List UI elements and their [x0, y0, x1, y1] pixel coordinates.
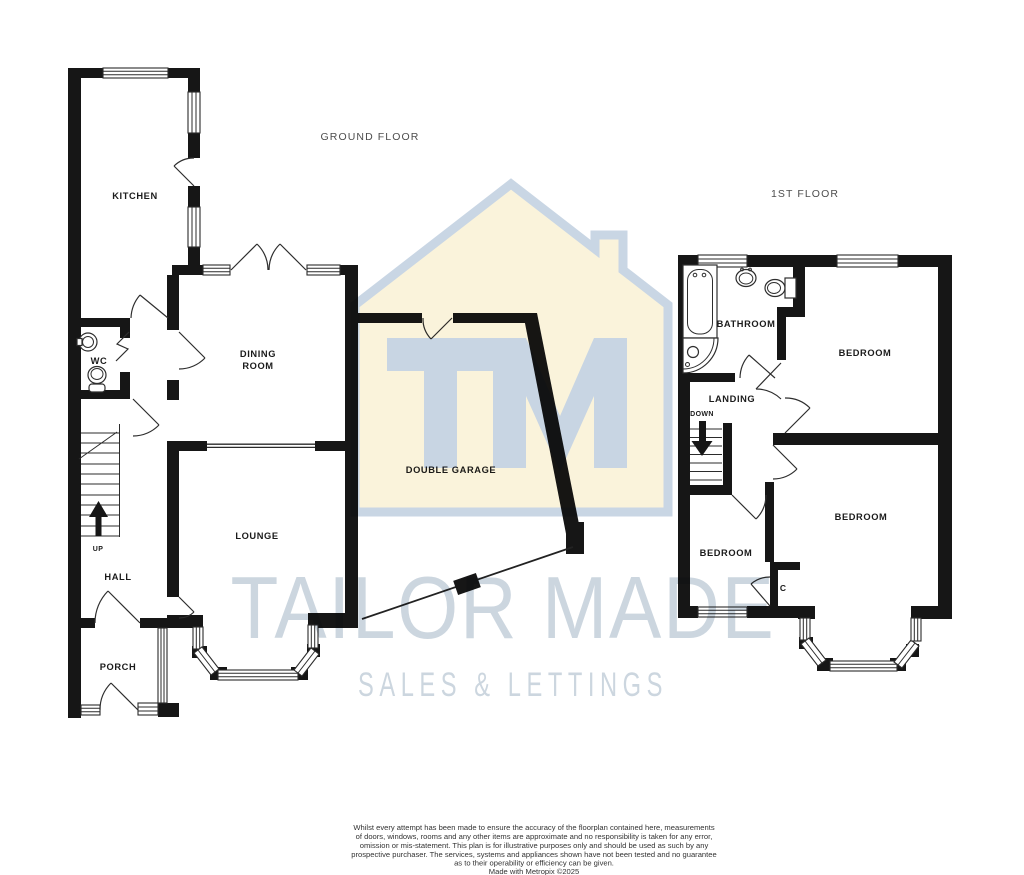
- lounge-door: [179, 597, 194, 618]
- label-bedroom-small: BEDROOM: [700, 548, 753, 558]
- label-cupboard: C: [780, 583, 786, 593]
- wc-toilet-base: [89, 384, 105, 392]
- stairs-first: [690, 421, 722, 480]
- bedroom-rear-door-a: [756, 363, 781, 399]
- dining-window-right: [307, 265, 340, 275]
- disclaimer: Whilst every attempt has been made to en…: [351, 823, 716, 875]
- label-dining-2: ROOM: [242, 361, 273, 371]
- dining-door: [179, 332, 205, 369]
- down-arrow-head: [692, 441, 713, 456]
- disclaimer-line-3: omission or mis-statement. This plan is …: [360, 841, 709, 850]
- kitchen-side-window2: [188, 207, 200, 247]
- label-dining-1: DINING: [240, 349, 276, 359]
- shower-basin: [688, 347, 699, 358]
- kitchen-lobby-door: [131, 295, 168, 318]
- bedroom-small-door: [732, 495, 766, 519]
- label-bathroom: BATHROOM: [717, 319, 776, 329]
- kitchen-side-window: [188, 92, 200, 133]
- dining-french-door-left: [231, 244, 268, 270]
- kitchen-door: [174, 158, 194, 186]
- kitchen-top-window: [103, 68, 168, 78]
- dining-window-left: [203, 265, 230, 275]
- bedroom-rear-door-b: [785, 398, 810, 433]
- disclaimer-credit: Made with Metropix ©2025: [489, 867, 579, 875]
- porch-window-left: [81, 705, 100, 715]
- porch-side-window: [158, 628, 167, 703]
- label-lounge: LOUNGE: [235, 531, 278, 541]
- label-porch: PORCH: [100, 662, 137, 672]
- label-kitchen: KITCHEN: [112, 191, 158, 201]
- first-floor-title: 1ST FLOOR: [771, 188, 839, 200]
- dining-french-door-right: [269, 244, 306, 270]
- front-door: [100, 683, 138, 710]
- watermark-brand-name: TAILOR MADE: [231, 558, 776, 657]
- label-wc: WC: [91, 356, 108, 366]
- porch-window-right: [138, 703, 158, 715]
- bedroom-bay-window: [800, 618, 921, 671]
- stairs-ground: [79, 424, 120, 537]
- bathroom-toilet-cistern: [785, 278, 796, 298]
- watermark-brand-tagline: SALES & LETTINGS: [358, 666, 668, 704]
- wc-sink-tap: [77, 339, 82, 346]
- label-bedroom-front: BEDROOM: [835, 512, 888, 522]
- label-bedroom-rear: BEDROOM: [839, 348, 892, 358]
- porch-hall-door: [95, 591, 140, 623]
- ground-floor-title: GROUND FLOOR: [321, 131, 420, 143]
- bedroom-front-door: [773, 445, 797, 479]
- bedroom-rear-window: [837, 255, 898, 267]
- floorplan-canvas: KITCHEN WC DINING ROOM LOUNGE HALL PORCH…: [0, 0, 1024, 875]
- hall-door: [133, 399, 159, 436]
- down-arrow-stem: [699, 421, 706, 443]
- floorplan-page: KITCHEN WC DINING ROOM LOUNGE HALL PORCH…: [0, 0, 1024, 875]
- label-landing: LANDING: [709, 394, 756, 404]
- open-plan-divider: [207, 444, 315, 447]
- label-up: UP: [93, 546, 104, 553]
- up-arrow-stem: [96, 517, 102, 536]
- disclaimer-line-1: Whilst every attempt has been made to en…: [353, 823, 715, 832]
- label-down: DOWN: [690, 411, 714, 418]
- up-arrow-head: [89, 501, 108, 517]
- disclaimer-line-2: of doors, windows, rooms and any other i…: [356, 832, 713, 841]
- label-hall: HALL: [104, 572, 131, 582]
